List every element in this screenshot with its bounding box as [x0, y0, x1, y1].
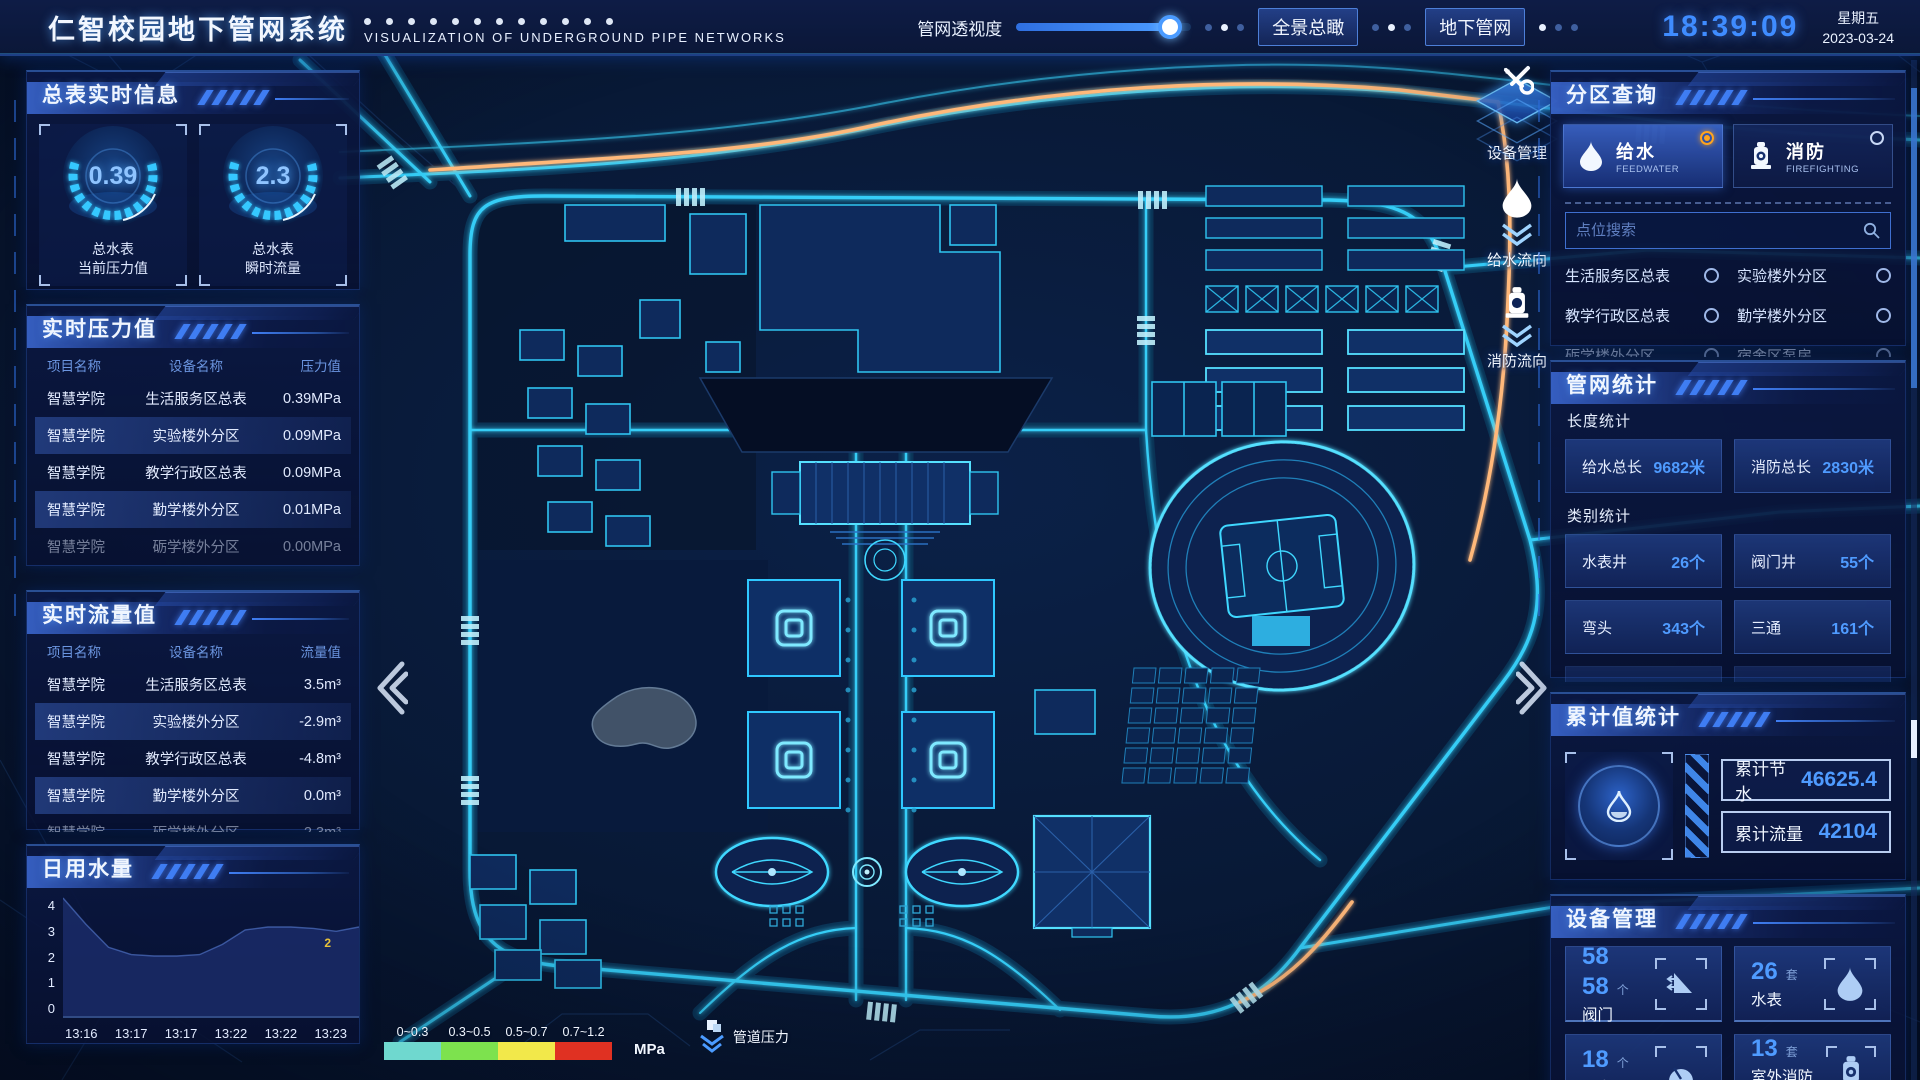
- app-title: 仁智校园地下管网系统: [48, 8, 348, 47]
- pressure-marker-icon: [699, 1018, 725, 1056]
- length-stats-title: 长度统计: [1551, 404, 1905, 437]
- device-management-tool[interactable]: [1475, 62, 1559, 140]
- app-header: 仁智校园地下管网系统 VISUALIZATION OF UNDERGROUND …: [0, 0, 1920, 56]
- slashes-decoration: [1680, 914, 1743, 929]
- table-row[interactable]: 智慧学院砺学楼外分区2.3m³: [35, 814, 351, 832]
- table-row[interactable]: 智慧学院实验楼外分区0.09MPa: [35, 417, 351, 454]
- panel-device-management: 设备管理 58 58个 阀门: [1550, 894, 1906, 1080]
- point-item[interactable]: 宿舍区泵房: [1737, 335, 1891, 357]
- pipe-pressure-marker: 管道压力: [699, 1018, 789, 1056]
- device-valves-card[interactable]: 58 58个 阀门: [1565, 946, 1722, 1022]
- dashed-divider: [1565, 202, 1891, 204]
- panel-totals: 累计值统计 累计节水: [1550, 692, 1906, 880]
- slashes-decoration: [1680, 90, 1743, 105]
- device-hydrants-card[interactable]: 13套 室外消防栓: [1734, 1034, 1891, 1080]
- table-header: 项目名称 设备名称 流量值: [35, 636, 351, 666]
- legend-unit: MPa: [634, 1041, 665, 1058]
- feedwater-flow-tool[interactable]: [1500, 177, 1534, 247]
- carousel-left-arrow[interactable]: [372, 660, 408, 721]
- clock-date: 2023-03-24: [1822, 30, 1894, 46]
- stat-meter-wells: 水表井 26个: [1565, 534, 1722, 588]
- stat-fire-length: 消防总长 2830米: [1734, 439, 1891, 493]
- radio-unselected-icon[interactable]: [1870, 131, 1884, 145]
- right-sidebar: 分区查询 给水 FEEDWATER: [1550, 70, 1906, 1080]
- mode-label: 给水: [1616, 138, 1679, 164]
- mode-feedwater[interactable]: 给水 FEEDWATER: [1563, 124, 1723, 188]
- legend-range-label: 0.3~0.5: [448, 1025, 490, 1039]
- water-drop-icon: [1578, 140, 1604, 172]
- table-row[interactable]: 智慧学院教学行政区总表-4.8m³: [35, 740, 351, 777]
- device-water-meters-card[interactable]: 26套 水表: [1734, 946, 1891, 1022]
- table-row[interactable]: 智慧学院勤学楼外分区0.01MPa: [35, 491, 351, 528]
- table-row[interactable]: 智慧学院砺学楼外分区0.00MPa: [35, 528, 351, 558]
- stripe-decoration: [1685, 754, 1709, 858]
- panel-realtime-flow: 实时流量值 项目名称 设备名称 流量值 智慧学院生活服务区总表3.5m³ 智慧学…: [26, 590, 360, 830]
- mode-sublabel: FIREFIGHTING: [1786, 164, 1859, 175]
- stat-valve-wells: 阀门井 55个: [1734, 534, 1891, 588]
- table-row[interactable]: 智慧学院实验楼外分区-2.9m³: [35, 703, 351, 740]
- radio-icon[interactable]: [1704, 348, 1719, 358]
- radio-icon[interactable]: [1704, 308, 1719, 323]
- panel-title: 设备管理: [1551, 903, 1658, 938]
- clock-weekday: 星期五: [1837, 8, 1879, 28]
- radio-icon[interactable]: [1876, 268, 1891, 283]
- slider-knob[interactable]: [1158, 15, 1182, 39]
- total-water-saved: 累计节水 46625.4: [1721, 759, 1891, 801]
- mode-label: 消防: [1786, 138, 1859, 164]
- pipe-pressure-legend: 0~0.3 0.3~0.5 0.5~0.7 0.7~1.2 MPa 管道压力: [384, 1018, 789, 1060]
- mode-sublabel: FEEDWATER: [1616, 164, 1679, 175]
- slashes-decoration: [179, 324, 242, 339]
- fire-hydrant-icon: [1502, 286, 1532, 320]
- panel-title: 实时流量值: [27, 599, 157, 634]
- radio-selected-icon[interactable]: [1700, 131, 1714, 145]
- panel-title: 日用水量: [27, 853, 134, 888]
- wrench-tools-icon: [1500, 64, 1534, 98]
- panel-zone-query: 分区查询 给水 FEEDWATER: [1550, 70, 1906, 346]
- underground-pipes-button[interactable]: 地下管网: [1425, 8, 1525, 46]
- point-item[interactable]: 实验楼外分区: [1737, 255, 1891, 295]
- chevron-down-icon: [1500, 223, 1534, 247]
- dots-decoration: [1372, 24, 1411, 31]
- point-item[interactable]: 生活服务区总表: [1565, 255, 1719, 295]
- table-row[interactable]: 智慧学院生活服务区总表3.5m³: [35, 666, 351, 703]
- table-row[interactable]: 智慧学院勤学楼外分区0.0m³: [35, 777, 351, 814]
- dots-decoration: [1205, 24, 1244, 31]
- app-subtitle: VISUALIZATION OF UNDERGROUND PIPE NETWOR…: [364, 30, 786, 45]
- carousel-right-arrow[interactable]: [1516, 660, 1552, 721]
- fire-hydrant-icon: [1836, 1055, 1866, 1080]
- scrollbar-thumb[interactable]: [1911, 720, 1917, 758]
- point-search[interactable]: [1565, 212, 1891, 249]
- panel-title: 总表实时信息: [27, 79, 180, 114]
- panel-title: 管网统计: [1551, 369, 1658, 404]
- legend-marker-label: 管道压力: [733, 1027, 789, 1047]
- fire-flow-tool[interactable]: [1500, 286, 1534, 348]
- slashes-decoration: [1680, 380, 1743, 395]
- stat-clipped: [1734, 666, 1891, 682]
- radio-icon[interactable]: [1876, 308, 1891, 323]
- legend-swatch: [441, 1042, 498, 1060]
- panel-realtime-pressure: 实时压力值 项目名称 设备名称 压力值 智慧学院生活服务区总表0.39MPa 智…: [26, 304, 360, 566]
- panel-pipe-stats: 管网统计 长度统计 给水总长 9682米 消防总长 2830米 类别统计: [1550, 360, 1906, 678]
- dots-decoration: [364, 18, 786, 25]
- data-point-label: 2: [324, 936, 331, 950]
- radio-icon[interactable]: [1704, 268, 1719, 283]
- scrollbar[interactable]: [1911, 60, 1917, 1080]
- stat-elbows: 弯头 343个: [1565, 600, 1722, 654]
- gauge-label-line1: 总水表: [39, 240, 187, 259]
- slider-fill: [1016, 23, 1170, 31]
- water-total-icon-card: [1565, 752, 1673, 860]
- search-icon[interactable]: [1863, 222, 1880, 239]
- dots-decoration: [1539, 24, 1578, 31]
- legend-swatch: [384, 1042, 441, 1060]
- water-drop-icon: [1500, 177, 1534, 219]
- total-flow: 累计流量 42104: [1721, 811, 1891, 853]
- gauge-label-line1: 总水表: [199, 240, 347, 259]
- gauge-value: 0.39: [39, 162, 187, 191]
- gauge-flow: 2.3 总水表 瞬时流量: [199, 124, 347, 286]
- gauge-pressure: 0.39 总水表 当前压力值: [39, 124, 187, 286]
- search-input[interactable]: [1566, 222, 1863, 239]
- legend-swatch: [498, 1042, 555, 1060]
- stat-tees: 三通 161个: [1734, 600, 1891, 654]
- panorama-button[interactable]: 全景总瞰: [1258, 8, 1358, 46]
- dashboard-root: 仁智校园地下管网系统 VISUALIZATION OF UNDERGROUND …: [0, 0, 1920, 1080]
- device-pressure-gauges-card[interactable]: 18个 压力计: [1565, 1034, 1722, 1080]
- panel-daily-water: 日用水量 4 3 2 1 0 2 13:16: [26, 844, 360, 1044]
- scrollbar-segment[interactable]: [1911, 88, 1917, 388]
- point-item[interactable]: 教学行政区总表: [1565, 295, 1719, 335]
- category-stats-title: 类别统计: [1551, 499, 1905, 532]
- opacity-slider-label: 管网透视度: [917, 15, 1002, 40]
- slashes-decoration: [179, 610, 242, 625]
- panel-title: 累计值统计: [1551, 701, 1681, 736]
- table-row[interactable]: 智慧学院生活服务区总表0.39MPa: [35, 380, 351, 417]
- pipe-opacity-slider[interactable]: [1016, 23, 1191, 31]
- table-row[interactable]: 智慧学院教学行政区总表0.09MPa: [35, 454, 351, 491]
- radio-icon[interactable]: [1876, 348, 1891, 358]
- slashes-decoration: [1703, 712, 1766, 727]
- stat-clipped: [1565, 666, 1722, 682]
- water-drop-icon: [1835, 966, 1865, 1002]
- legend-range-label: 0.5~0.7: [505, 1025, 547, 1039]
- panel-title: 分区查询: [1551, 79, 1658, 114]
- diamond-platform: [1475, 62, 1559, 140]
- stat-feedwater-length: 给水总长 9682米: [1565, 439, 1722, 493]
- gauge-label-line2: 当前压力值: [39, 259, 187, 278]
- area-chart: [63, 896, 359, 1018]
- point-item[interactable]: 砺学楼外分区: [1565, 335, 1719, 357]
- fire-hydrant-icon: [1748, 141, 1774, 171]
- legend-swatch: [555, 1042, 612, 1060]
- y-axis-labels: 4 3 2 1 0: [35, 898, 55, 1016]
- clock-time: 18:39:09: [1662, 10, 1798, 44]
- left-sidebar: 总表实时信息 0.39 总水表: [26, 70, 360, 1058]
- table-header: 项目名称 设备名称 压力值: [35, 350, 351, 380]
- slashes-decoration: [156, 864, 219, 879]
- legend-range-label: 0.7~1.2: [562, 1025, 604, 1039]
- chevron-down-icon: [1500, 324, 1534, 348]
- panel-meter-info: 总表实时信息 0.39 总水表: [26, 70, 360, 290]
- legend-range-label: 0~0.3: [397, 1025, 429, 1039]
- slashes-decoration: [202, 90, 265, 105]
- pressure-gauge-icon: [1664, 1055, 1698, 1080]
- panel-title: 实时压力值: [27, 313, 157, 348]
- x-axis-labels: 13:16 13:17 13:17 13:22 13:22 13:23: [31, 1023, 349, 1047]
- point-item[interactable]: 勤学楼外分区: [1737, 295, 1891, 335]
- water-drop-icon: [1606, 790, 1632, 822]
- mode-firefighting[interactable]: 消防 FIREFIGHTING: [1733, 124, 1893, 188]
- daily-water-chart: 4 3 2 1 0 2 13:16 13:17 13:17 13:22: [27, 888, 359, 1053]
- gauge-label-line2: 瞬时流量: [199, 259, 347, 278]
- valve-icon: [1664, 967, 1698, 1001]
- gauge-value: 2.3: [199, 162, 347, 191]
